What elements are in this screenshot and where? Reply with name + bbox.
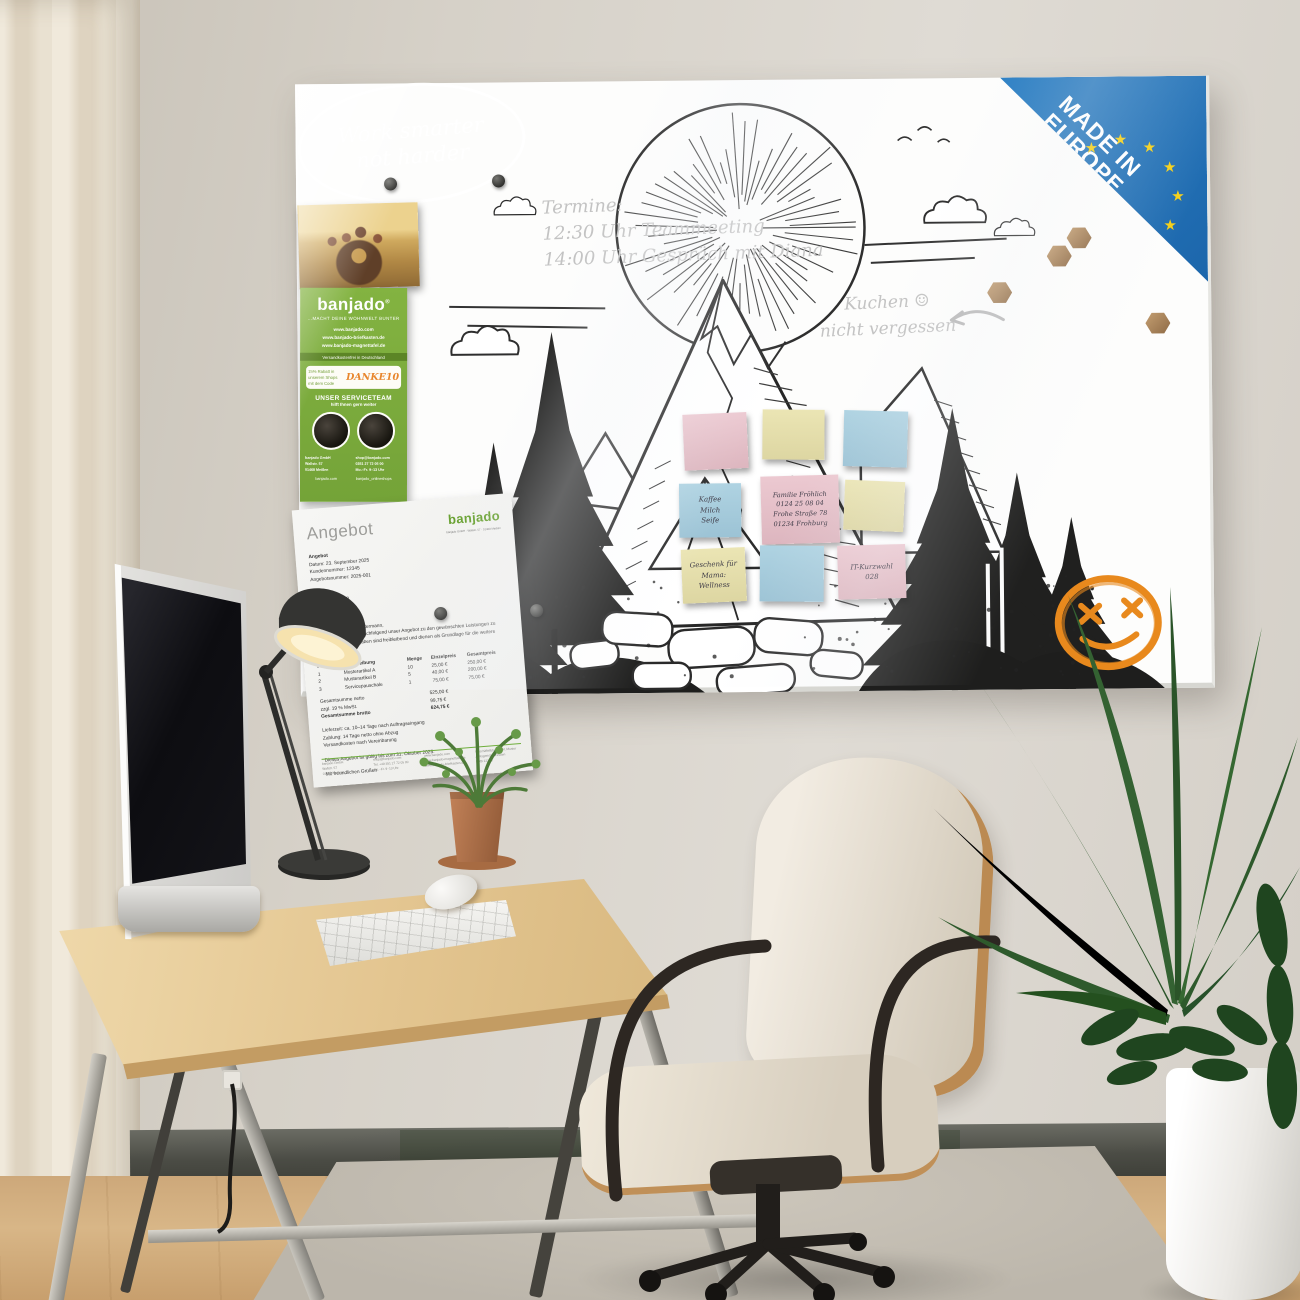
doc-title: Angebot xyxy=(306,516,375,548)
dog-photo xyxy=(357,412,395,450)
eu-star-icon: ★ xyxy=(1163,160,1177,175)
round-magnet-icon[interactable] xyxy=(530,604,543,617)
lamp-head xyxy=(268,577,377,677)
sticky-note-address[interactable]: Familie Fröhlich 0124 25 08 04 Frohe Str… xyxy=(760,475,840,545)
eu-star-icon: ★ xyxy=(1143,140,1157,155)
sticky-note[interactable] xyxy=(682,412,748,471)
brochure-tagline: ...MACHT DEINE WOHNWELT BUNTER xyxy=(300,316,407,321)
birds xyxy=(898,127,950,143)
doc-logo: banjado banjado GmbH · Wallstr. 57 · 014… xyxy=(445,506,501,535)
eu-star-icon: ★ xyxy=(1171,189,1185,204)
banjado-brochure-magnet[interactable]: banjado® ...MACHT DEINE WOHNWELT BUNTER … xyxy=(300,288,407,502)
brochure-social: banjado.combanjado_onlineshops xyxy=(300,476,407,480)
sticky-note-shopping[interactable]: Kaffee Milch Seife xyxy=(679,483,742,538)
round-magnet-icon[interactable] xyxy=(492,174,505,187)
brochure-urls: www.banjado.com www.banjado-briefkasten.… xyxy=(300,326,407,349)
brochure-service-title: UNSER SERVICETEAM xyxy=(300,395,407,402)
brochure-logo: banjado® xyxy=(300,295,407,315)
sticky-note[interactable] xyxy=(843,410,908,468)
home-office-scene: Termine: 12:30 Uhr Teammeeting 14:00 Uhr… xyxy=(0,0,1300,1300)
sticky-note[interactable] xyxy=(843,480,905,533)
round-magnet-icon[interactable] xyxy=(434,607,447,620)
smiley-face-icon: ☺ xyxy=(914,291,930,312)
family-photo-magnet[interactable] xyxy=(298,202,420,289)
desk-lamp[interactable] xyxy=(236,570,386,890)
discount-code: DANKE10 xyxy=(346,372,399,383)
brochure-dog-photos xyxy=(300,412,407,450)
imac-stand xyxy=(118,886,260,932)
eu-star-icon: ★ xyxy=(1163,218,1177,233)
power-cable xyxy=(200,1078,260,1238)
sticky-note[interactable] xyxy=(760,545,824,602)
eu-star-icon: ★ xyxy=(1085,141,1099,156)
brochure-contact: banjado GmbH Wallstr. 57 01468 Meißen sh… xyxy=(305,456,402,473)
brochure-coupon: 15% Rabatt in unserem Shops mit dem Code… xyxy=(306,366,401,389)
round-magnet-icon[interactable] xyxy=(384,177,397,190)
sticky-note-it[interactable]: IT-Kurzwahl 028 xyxy=(837,544,906,600)
kuchen-word: Kuchen xyxy=(844,292,910,315)
handwritten-appointments: Termine: 12:30 Uhr Teammeeting 14:00 Uhr… xyxy=(541,186,824,274)
small-plant xyxy=(404,714,554,810)
dog-photo xyxy=(312,412,350,450)
brochure-shipping-banner: Versandkostenfrei in Deutschland xyxy=(300,353,407,361)
eu-star-icon: ★ xyxy=(1114,132,1128,147)
palm-plant xyxy=(920,585,1300,1165)
sticky-note-gift[interactable]: Geschenk für Mama: Wellness xyxy=(681,547,747,604)
sticky-note[interactable] xyxy=(762,409,824,459)
handwritten-cake-reminder: Kuchen ☺ nicht vergessen xyxy=(818,288,956,345)
hand-drawn-arrow xyxy=(951,311,1003,324)
